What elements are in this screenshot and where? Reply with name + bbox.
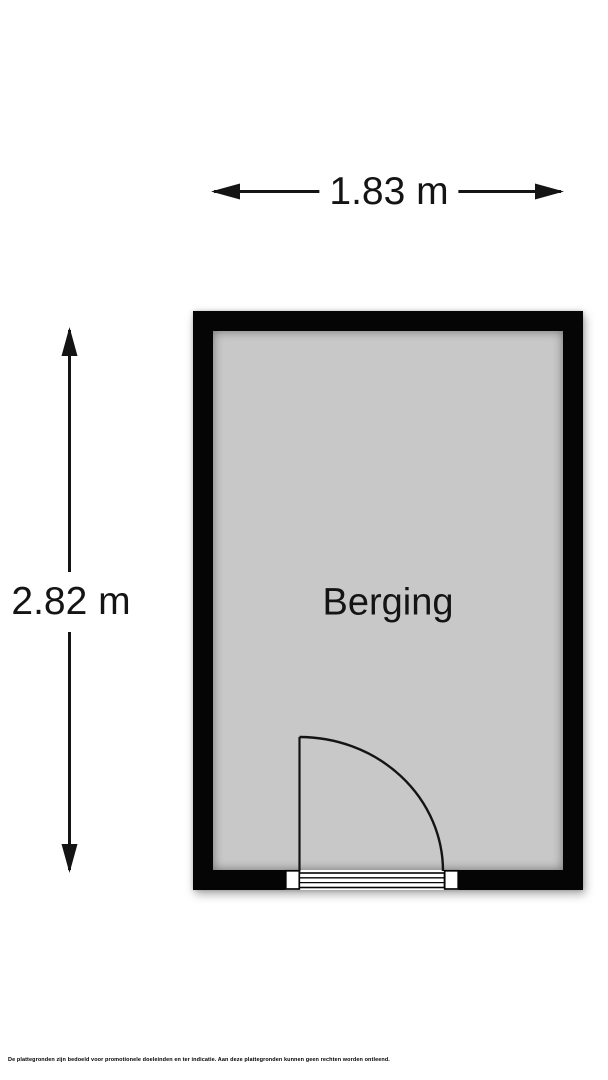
door-swing (285, 737, 459, 890)
floorplan-canvas: 1.83 m 2.82 m Berging De plattegronden z… (0, 0, 608, 1080)
door-threshold (299, 873, 445, 888)
door-jamb-right (445, 871, 459, 889)
disclaimer-text: De plattegronden zijn bedoeld voor promo… (8, 1057, 390, 1063)
door-arc (300, 737, 444, 871)
door-layer (0, 0, 608, 1080)
door-jamb-left (286, 871, 300, 889)
